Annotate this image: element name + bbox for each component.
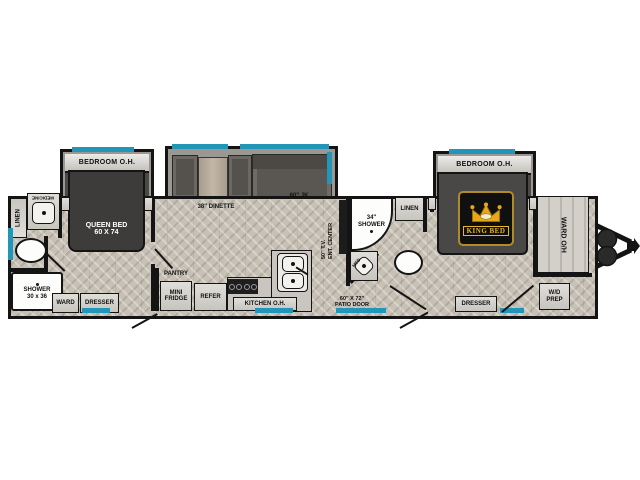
toilet-mid <box>394 250 423 275</box>
hitch-coupler <box>634 238 640 254</box>
window <box>240 144 329 149</box>
dinette-bench <box>172 155 198 199</box>
dinette-label: 38" DINETTE <box>186 204 246 211</box>
linen-cabinet-mid: LINEN <box>395 197 424 221</box>
bath-sink <box>32 202 55 224</box>
washer-dryer-prep: W/D PREP <box>539 283 570 310</box>
window <box>255 308 293 313</box>
propane-tank <box>598 230 617 249</box>
window <box>449 149 515 154</box>
patio-door-glass <box>336 308 386 313</box>
patio-door-label: 60" X 72" PATIO DOOR <box>324 296 380 308</box>
window <box>327 152 332 184</box>
dinette-bench <box>228 155 252 199</box>
king-bed-emblem: KING BED <box>458 191 514 246</box>
kitchen-sink <box>277 253 308 292</box>
tv <box>339 200 347 254</box>
mini-fridge: MINI FRIDGE <box>160 281 192 311</box>
wall <box>533 273 592 277</box>
queen-bed: QUEEN BED 60 X 74 <box>68 170 145 252</box>
window <box>172 144 228 149</box>
propane-tank <box>598 247 617 266</box>
king-bed-label: KING BED <box>463 226 510 236</box>
vanity: MEDICINE <box>27 193 60 230</box>
wardrobe-overhead: WARD O/H <box>537 196 589 273</box>
nightstand <box>144 197 153 211</box>
crown-icon <box>469 202 503 225</box>
dinette-table <box>198 157 228 199</box>
floorplan: BEDROOM O.H. BEDROOM O.H. LINEN MEDICINE <box>0 0 640 480</box>
nightstand <box>61 197 70 211</box>
toilet <box>15 238 47 263</box>
cooktop <box>228 279 258 294</box>
window <box>82 308 110 313</box>
nightstand <box>428 197 436 210</box>
pantry-label: PANTRY <box>158 271 194 278</box>
dresser-front: DRESSER <box>455 296 497 312</box>
window <box>8 228 13 260</box>
bath-vanity-mid: MED <box>350 251 378 281</box>
refrigerator: REFER <box>194 283 227 311</box>
window <box>72 147 134 152</box>
wardrobe: WARD <box>52 293 79 313</box>
tv-ent-center-label: 50" T.V. ENT. CENTER <box>315 197 339 259</box>
medicine-cabinet-label: MEDICINE <box>32 195 54 200</box>
nightstand <box>529 197 537 210</box>
